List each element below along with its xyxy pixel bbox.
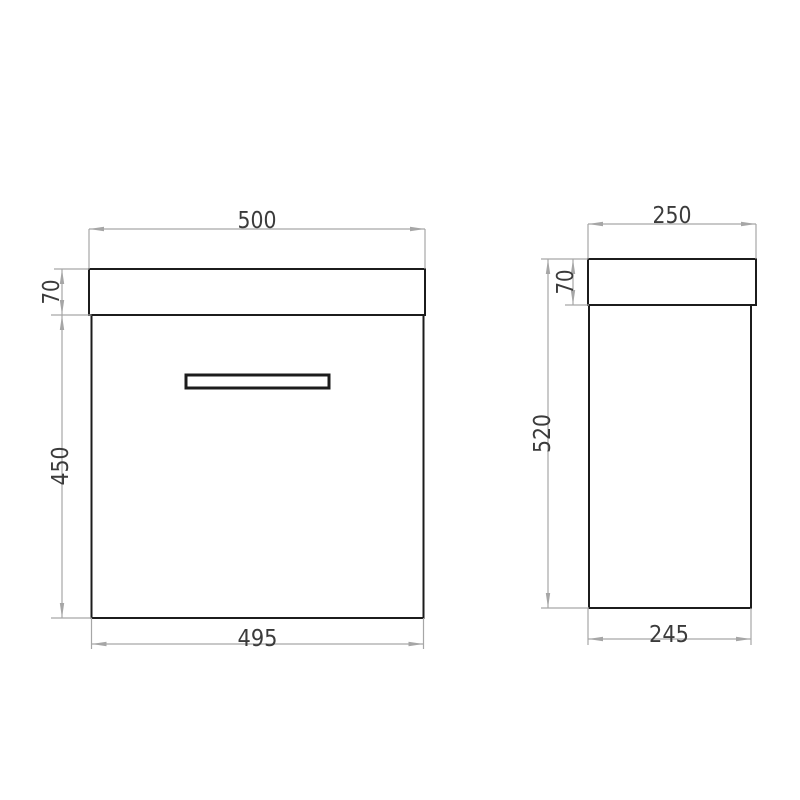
dim-label-side-top-depth: 250 <box>653 201 692 229</box>
dimension-arrow <box>546 259 550 274</box>
dimension-arrow <box>588 222 603 226</box>
dimension-arrow <box>546 593 550 608</box>
dimension-arrow <box>409 642 424 646</box>
dimension-arrow <box>588 637 603 641</box>
dimension-arrow <box>60 315 64 330</box>
dimension-arrow <box>60 603 64 618</box>
dim-label-side-worktop-height: 70 <box>551 270 579 295</box>
dimension-arrow <box>92 642 107 646</box>
dim-label-front-top-width: 500 <box>238 206 277 234</box>
dimension-arrow <box>89 227 104 231</box>
side-worktop <box>588 259 756 305</box>
dimension-arrow <box>741 222 756 226</box>
dim-label-front-bottom-width: 495 <box>238 624 278 652</box>
dim-label-front-worktop-height: 70 <box>37 280 65 305</box>
dim-label-front-body-height: 450 <box>46 447 74 486</box>
dimension-arrow <box>736 637 751 641</box>
front-drawer-handle <box>186 375 329 388</box>
front-view <box>89 269 425 618</box>
front-worktop <box>89 269 425 315</box>
dim-label-side-total-height: 520 <box>528 414 556 453</box>
side-cabinet-body <box>589 305 751 608</box>
dimension-arrow <box>410 227 425 231</box>
drawing-svg: 500 70 450 495 250 70 <box>0 0 800 800</box>
side-view <box>588 259 756 608</box>
dim-label-side-bottom-depth: 245 <box>649 620 689 648</box>
front-cabinet-body <box>92 315 424 618</box>
technical-drawing: 500 70 450 495 250 70 <box>0 0 800 800</box>
